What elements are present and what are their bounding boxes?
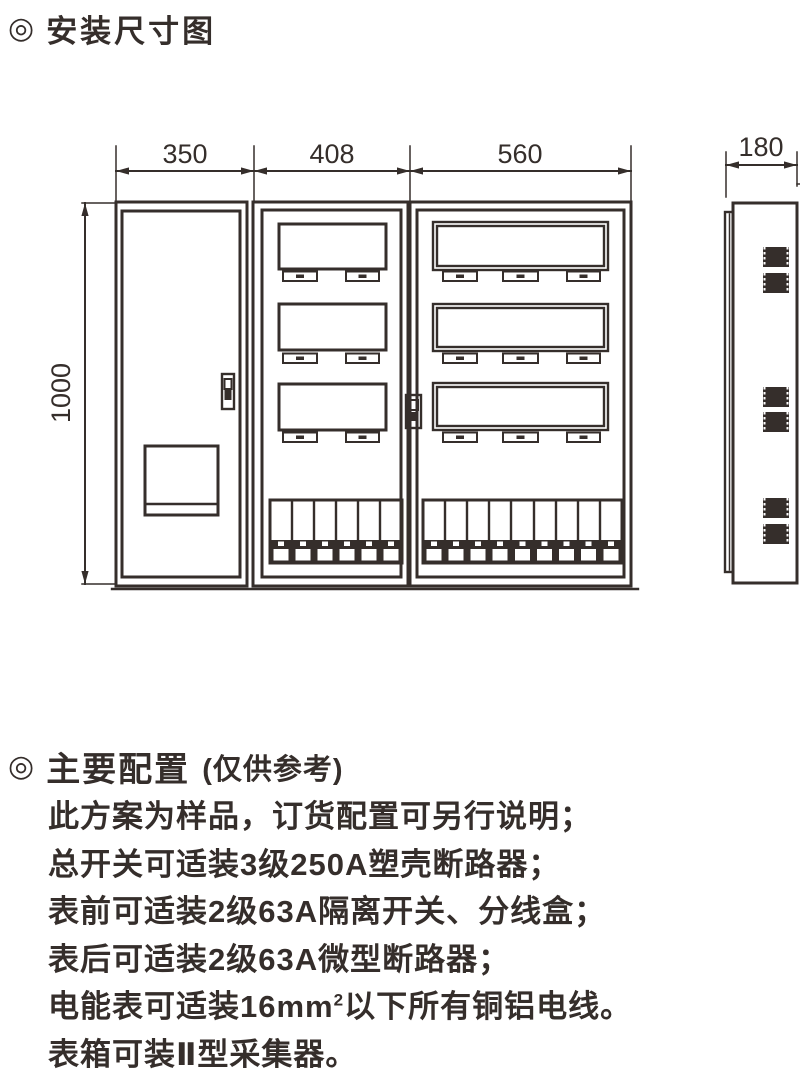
dim-label-right-width: 560 [497, 139, 542, 169]
nameplate-mark [517, 275, 525, 279]
terminal-notch [542, 542, 548, 547]
nameplate-mark [456, 436, 464, 440]
meter-window-inner [437, 387, 604, 426]
vent-louver [763, 273, 789, 293]
terminal-notch [366, 542, 372, 547]
config-note: 此方案为样品，订货配置可另行说明； [48, 793, 632, 841]
vent-louver [763, 524, 789, 544]
terminal-notch [388, 542, 394, 547]
dim-label-left-width: 350 [162, 139, 207, 169]
terminal-notch [453, 542, 459, 547]
nameplate-mark [296, 275, 304, 279]
config-note: 总开关可适装3级250A塑壳断路器； [48, 841, 632, 889]
meter-window [433, 304, 608, 351]
dim-label-middle-width: 408 [309, 139, 354, 169]
config-title: 主要配置 [46, 742, 190, 791]
nameplate-mark [580, 357, 588, 361]
terminal-cell [449, 549, 464, 561]
left-cabinet [116, 202, 247, 586]
terminal-cell [384, 549, 399, 561]
arrowhead-icon [254, 167, 267, 174]
terminal-notch [475, 542, 481, 547]
cabinet-outer-frame [410, 202, 631, 586]
terminal-cell [296, 549, 311, 561]
handle-grip [225, 389, 232, 400]
nameplate-mark [359, 275, 367, 279]
terminal-notch [520, 542, 526, 547]
config-note: 表后可适装2级63A微型断路器； [48, 936, 632, 984]
nameplate-mark [359, 436, 367, 440]
door-handle [222, 374, 234, 409]
nameplate-mark [517, 357, 525, 361]
terminal-cell [515, 549, 530, 561]
arrowhead-icon [241, 167, 254, 174]
vent-louvers [763, 247, 789, 544]
terminal-notch [586, 542, 592, 547]
dim-label-height: 1000 [46, 363, 76, 423]
config-notes-list: 此方案为样品，订货配置可另行说明； 总开关可适装3级250A塑壳断路器； 表前可… [48, 793, 632, 1078]
meter-window [279, 304, 386, 350]
breaker-strip [423, 500, 622, 563]
side-view [725, 203, 797, 583]
nameplate-mark [456, 275, 464, 279]
terminal-cell [493, 549, 508, 561]
meter-nameplates [283, 272, 379, 443]
meter-nameplates [443, 272, 600, 443]
terminal-cell [471, 549, 486, 561]
nameplate-mark [580, 436, 588, 440]
handle-slot [225, 379, 232, 389]
middle-cabinet [253, 202, 408, 586]
config-note: 电能表可适装16mm2以下所有铜铝电线。 [48, 983, 632, 1031]
terminal-cell [274, 549, 289, 561]
right-cabinet [410, 202, 631, 586]
terminal-cell [318, 549, 333, 561]
document-pocket [145, 446, 218, 515]
terminal-notch [300, 542, 306, 547]
arrowhead-icon [784, 161, 797, 168]
arrowhead-icon [397, 167, 410, 174]
terminal-notch [431, 542, 437, 547]
terminal-band [272, 540, 401, 562]
terminal-cell [362, 549, 377, 561]
note-text: 电能表可适装16mm [48, 989, 334, 1024]
double-circle-bullet-icon: ◎ [8, 752, 34, 782]
vent-louver [763, 387, 789, 407]
nameplate-mark [517, 436, 525, 440]
terminal-notch [322, 542, 328, 547]
terminal-cell [581, 549, 596, 561]
arrowhead-icon [618, 167, 631, 174]
vent-louver [763, 498, 789, 518]
breaker-strip [270, 500, 402, 563]
config-subtitle: (仅供参考) [202, 746, 343, 788]
config-note: 表箱可装Ⅱ型采集器。 [48, 1031, 632, 1078]
nameplate-mark [456, 357, 464, 361]
nameplate-mark [359, 357, 367, 361]
meter-window [279, 224, 386, 269]
meter-window-inner [437, 308, 604, 347]
meter-window-inner [437, 226, 604, 266]
terminal-cell [340, 549, 355, 561]
config-note: 表前可适装2级63A隔离开关、分线盒； [48, 888, 632, 936]
terminal-cell [559, 549, 574, 561]
arrowhead-icon [116, 167, 129, 174]
vent-louver [763, 412, 789, 432]
terminal-notch [608, 542, 614, 547]
superscript: 2 [334, 991, 344, 1010]
top-width-dimensions: 350 408 560 [116, 139, 631, 200]
dim-label-depth: 180 [738, 132, 783, 162]
front-view [112, 202, 638, 589]
arrowhead-icon [410, 167, 423, 174]
depth-dimension: 180 [726, 132, 800, 197]
terminal-cell [427, 549, 442, 561]
config-section-header: ◎ 主要配置 (仅供参考) [8, 742, 344, 791]
nameplate-mark [296, 357, 304, 361]
nameplate-mark [296, 436, 304, 440]
meter-window [279, 384, 386, 430]
arrowhead-icon [81, 571, 88, 584]
meter-window [433, 222, 608, 270]
terminal-cell [537, 549, 552, 561]
terminal-cell [604, 549, 619, 561]
terminal-notch [564, 542, 570, 547]
vent-louver [763, 247, 789, 267]
arrowhead-icon [726, 161, 739, 168]
arrowhead-icon [81, 203, 88, 216]
height-dimension: 1000 [46, 203, 114, 584]
note-text: 以下所有铜铝电线。 [344, 989, 632, 1024]
terminal-notch [497, 542, 503, 547]
terminal-notch [278, 542, 284, 547]
terminal-notch [344, 542, 350, 547]
meter-window [433, 383, 608, 430]
nameplate-mark [580, 275, 588, 279]
installation-dimension-drawing: 350 408 560 1000 180 [0, 0, 800, 680]
